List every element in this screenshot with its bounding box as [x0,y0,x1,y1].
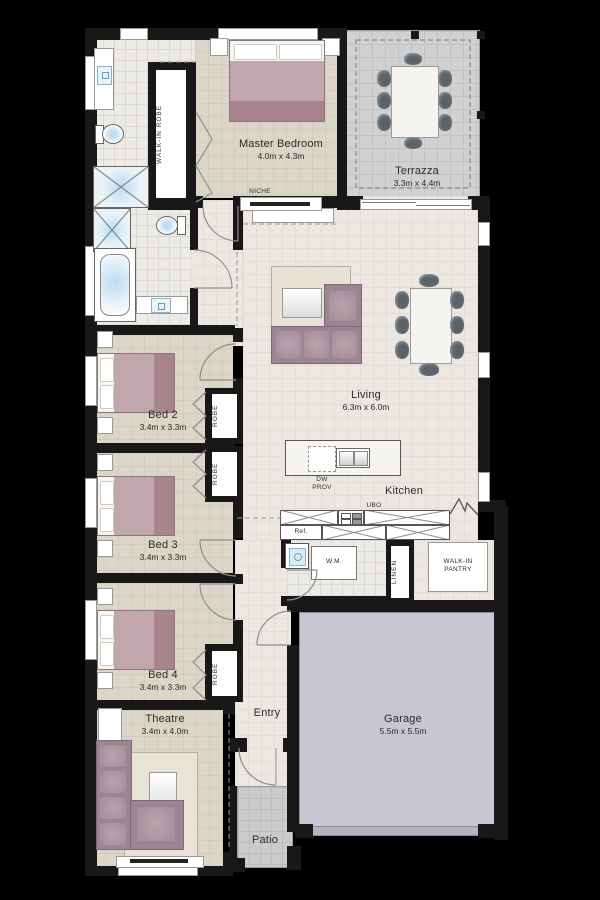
robe-label: ROBE [212,454,237,494]
room-name: Bed 4 [110,668,216,682]
line-art-overlay [0,0,600,900]
niche-label: NICHE [232,188,288,196]
room-label-bed2: Bed 2 3.4m x 3.3m [110,408,216,433]
room-name: Living [306,388,426,402]
room-label-theatre: Theatre 3.4m x 4.0m [105,712,225,737]
ref-label: Ref. [284,528,318,536]
garage-door-arc [257,611,291,645]
room-label-bed4: Bed 4 3.4m x 3.3m [110,668,216,693]
dw-line1: DW [305,476,339,484]
room-label-living: Living 6.3m x 6.0m [306,388,426,413]
room-label-kitchen: Kitchen [354,484,454,498]
front-door-arc [239,748,276,785]
robe-label: ROBE [212,396,237,436]
room-label-garage: Garage 5.5m x 5.5m [340,712,466,737]
room-name: Bed 3 [110,538,216,552]
pantry-line1: WALK-IN [430,558,486,566]
master-door-arc [203,206,238,241]
bathroom-door-arc [194,250,232,288]
room-label-entry: Entry [238,706,296,720]
robe-label: ROBE [212,653,237,694]
linen-label: LINEN [391,548,409,596]
room-dims: 3.3m x 4.4m [357,178,477,189]
room-dims: 3.4m x 3.3m [110,682,216,693]
room-label-bed3: Bed 3 3.4m x 3.3m [110,538,216,563]
room-dims: 5.5m x 5.5m [340,726,466,737]
room-label-terrazza: Terrazza 3.3m x 4.4m [357,164,477,189]
room-name: Master Bedroom [221,137,341,151]
room-label-master: Master Bedroom 4.0m x 4.3m [221,137,341,162]
floor-plan: Master Bedroom 4.0m x 4.3m Terrazza 3.3m… [0,0,600,900]
room-dims: 6.3m x 6.0m [306,402,426,413]
walk-in-robe-bifold-door [196,112,212,202]
bed4-door-arc [200,584,236,620]
room-dims: 3.4m x 3.3m [110,422,216,433]
room-label-patio: Patio [238,833,292,847]
robe-bifold-door [193,450,206,498]
opening-zigzag [450,499,478,515]
room-dims: 3.4m x 3.3m [110,552,216,563]
room-dims: 3.4m x 4.0m [105,726,225,737]
room-dims: 4.0m x 4.3m [221,151,341,162]
pantry-line2: PANTRY [430,566,486,574]
ubo-label: UBO [358,502,390,510]
room-name: Terrazza [357,164,477,178]
dw-line2: PROV [305,484,339,492]
dw-prov-label: DW PROV [305,476,339,493]
pantry-label: WALK-IN PANTRY [430,558,486,575]
wm-label: W.M. [313,558,355,566]
laundry-door-arc [287,570,317,600]
room-name: Theatre [105,712,225,726]
bed2-door-arc [200,344,236,380]
walk-in-robe-label: WALK-IN ROBE [156,74,186,194]
room-name: Bed 2 [110,408,216,422]
room-name: Garage [340,712,466,726]
